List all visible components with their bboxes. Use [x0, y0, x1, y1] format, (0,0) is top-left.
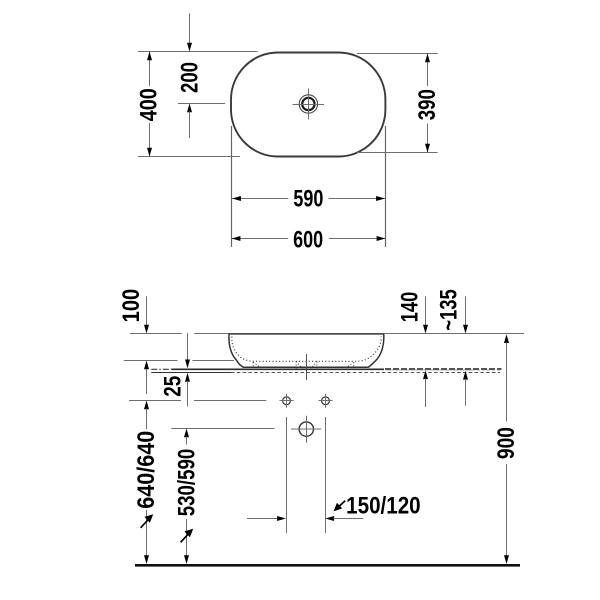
- svg-text:~135: ~135: [436, 289, 463, 331]
- svg-text:140: 140: [397, 292, 424, 323]
- svg-text:100: 100: [118, 289, 145, 323]
- svg-text:25: 25: [160, 376, 187, 397]
- svg-text:200: 200: [177, 62, 204, 93]
- svg-text:530/590: 530/590: [174, 449, 201, 517]
- svg-text:390: 390: [414, 89, 441, 120]
- svg-text:150/120: 150/120: [346, 493, 421, 520]
- svg-text:600: 600: [293, 226, 323, 253]
- svg-text:640/640: 640/640: [133, 431, 160, 509]
- svg-text:590: 590: [293, 185, 323, 212]
- svg-text:900: 900: [493, 427, 520, 459]
- svg-text:400: 400: [136, 88, 163, 121]
